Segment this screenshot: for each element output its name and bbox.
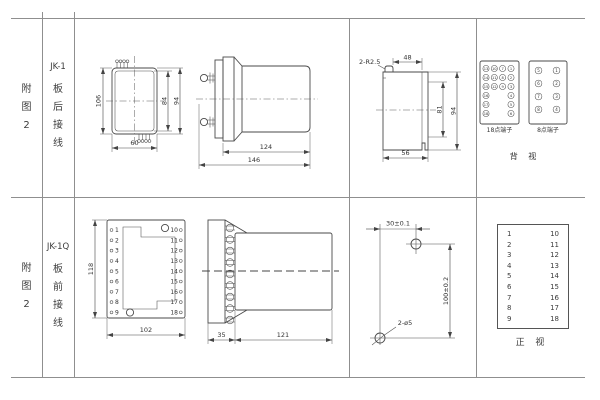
terminal-point (110, 290, 113, 293)
terminal-number: 12 (170, 248, 178, 255)
screw-head (226, 293, 234, 301)
terminal-number: 3 (115, 248, 119, 255)
terminal-table-number: 6 (507, 282, 511, 293)
jk1q-drill-plan: 30±0.1 100±0.2 2-ø5 (358, 212, 470, 364)
terminal-number: 6 (115, 279, 119, 286)
terminal-number: 5 (115, 268, 119, 275)
cutout-outline (383, 72, 428, 150)
terminal-table-number: 2 (507, 240, 511, 251)
terminal-table-number: 11 (550, 240, 559, 251)
terminal-point (110, 249, 113, 252)
table-border-bottom (11, 377, 585, 378)
screw-head (226, 224, 234, 232)
terminal-number: 7 (115, 289, 119, 296)
terminal-table-number: 14 (550, 271, 559, 282)
terminal-point (179, 270, 182, 273)
terminal-comb-top-screws (116, 60, 129, 63)
table-border-top (11, 18, 585, 19)
terminal-table-number: 13 (550, 261, 559, 272)
center-lines (106, 56, 164, 146)
jk1-side-view-drawing: 124 146 (196, 48, 326, 173)
mounting-stud-bottom (200, 117, 215, 128)
dim-48: 48 (403, 54, 411, 62)
terminal-comb-bottom (139, 134, 150, 140)
terminal-point (110, 260, 113, 263)
terminal-point (179, 260, 182, 263)
front-terminals-right: 101112131415161718 (170, 227, 182, 316)
dim-106: 106 (95, 95, 103, 107)
terminal-table-number: 18 (550, 314, 559, 325)
terminal-number: 16 (484, 94, 489, 98)
terminal-number: 2 (115, 237, 119, 244)
terminal-number: 13 (484, 67, 489, 71)
front-plate (208, 220, 225, 323)
holes-note: 2-ø5 (398, 319, 413, 327)
row2-model-cell: JK-1Q 板 前 接 线 (42, 197, 74, 377)
mounting-hole-top (161, 224, 168, 231)
terminal-number: 6 (510, 112, 513, 116)
terminal-number: 17 (484, 103, 489, 107)
terminal-table-number: 4 (507, 261, 511, 272)
terminal-number: 6 (537, 81, 540, 86)
terminal-point (179, 280, 182, 283)
dim-118: 118 (87, 263, 95, 275)
terminal-number: 7 (501, 67, 503, 71)
jk1q-front-view-drawing: 123456789 101112131415161718 118 102 (84, 212, 210, 354)
terminal-point (110, 301, 113, 304)
terminal-table-number: 10 (550, 229, 559, 240)
terminal-point (179, 311, 182, 314)
terminal-number: 2 (555, 81, 558, 86)
table-col-divider-3 (349, 18, 350, 377)
rear-view-label: 背 视 (510, 151, 541, 161)
terminal-table-number: 17 (550, 303, 559, 314)
dim-35: 35 (217, 331, 225, 339)
terminal-18-label: 18点端子 (487, 126, 513, 134)
mounting-hole-bottom (126, 309, 133, 316)
terminal-table-left-column: 123456789 (507, 229, 511, 324)
jk1-rear-view-drawing: 2-R2.5 48 81 94 56 (356, 48, 474, 176)
jk1-front-view-drawing: 106 84 94 60 (88, 42, 198, 164)
terminal-number: 9 (501, 85, 504, 89)
table-row-divider (11, 197, 585, 198)
terminal-block-18-points: 131071141182151293164175186 (483, 65, 514, 116)
dim-124: 124 (260, 143, 272, 151)
terminal-number: 10 (170, 227, 178, 234)
row1-model-cell: JK-1 板 后 接 线 (42, 18, 74, 197)
terminal-table-number: 9 (507, 314, 511, 325)
terminal-screw-stack (225, 224, 235, 324)
terminal-number: 4 (115, 258, 119, 265)
terminal-number: 5 (537, 68, 540, 73)
terminal-point (179, 249, 182, 252)
row1-wiring-label: 板 后 接 线 (53, 81, 63, 153)
terminal-number: 13 (170, 258, 178, 265)
dim-94: 94 (173, 97, 181, 105)
dim-81: 81 (436, 105, 444, 113)
terminal-number: 4 (555, 107, 558, 112)
terminal-8-label: 8点端子 (537, 126, 559, 134)
screw-head (226, 247, 234, 255)
terminal-number: 3 (510, 85, 512, 89)
terminal-number: 14 (484, 76, 489, 80)
radius-note: 2-R2.5 (359, 58, 380, 66)
terminal-number: 12 (492, 85, 497, 89)
extension-lines (208, 310, 332, 344)
screw-head (226, 282, 234, 290)
front-terminals-left: 123456789 (110, 227, 119, 316)
terminal-point (179, 290, 182, 293)
terminal-table-right-column: 101112131415161718 (550, 229, 559, 324)
terminal-point (110, 229, 113, 232)
terminal-table-number: 1 (507, 229, 511, 240)
row2-model-label: JK-1Q (47, 242, 69, 252)
jk1q-side-view-drawing: 35 121 (200, 212, 342, 354)
terminal-number: 15 (170, 279, 178, 286)
technical-drawing-page: 附 图 2 JK-1 板 后 接 线 附 图 2 JK-1Q 板 前 接 线 (0, 0, 600, 400)
terminal-number: 4 (510, 94, 513, 98)
terminal-number: 1 (555, 68, 558, 73)
corner-tab (385, 66, 393, 72)
terminal-point (179, 239, 182, 242)
inner-step-outline (123, 227, 175, 309)
terminal-number: 18 (170, 310, 178, 317)
terminal-point (110, 311, 113, 314)
front-view-label: 正 视 (497, 335, 567, 348)
row2-wiring-label: 板 前 接 线 (53, 261, 63, 333)
terminal-number: 10 (492, 67, 497, 71)
terminal-number: 8 (501, 76, 504, 80)
body-chamfer (225, 220, 247, 323)
mounting-stud-top (200, 73, 215, 84)
terminal-table-number: 15 (550, 282, 559, 293)
terminal-number: 15 (484, 85, 489, 89)
terminal-point (179, 301, 182, 304)
terminal-table-number: 16 (550, 293, 559, 304)
row1-fig-cell: 附 图 2 (11, 18, 42, 197)
row2-fig-cell: 附 图 2 (11, 197, 42, 377)
terminal-comb-top (117, 63, 128, 69)
jk1-terminal-layout: 131071141182151293164175186 51627384 18点… (479, 58, 581, 170)
terminal-number: 16 (170, 289, 178, 296)
terminal-comb-bottom-screws (138, 140, 151, 143)
radius-leader (378, 65, 385, 69)
dim-121: 121 (277, 331, 289, 339)
screw-head (226, 305, 234, 313)
terminal-block-8-outline (529, 61, 567, 124)
dim-30: 30±0.1 (386, 220, 410, 228)
table-col-divider-4 (476, 18, 477, 377)
terminal-point (110, 270, 113, 273)
dim-84: 84 (161, 97, 169, 105)
row1-fig-label: 附 图 2 (22, 81, 32, 135)
table-col-divider-2 (74, 12, 75, 377)
terminal-table-number: 5 (507, 271, 511, 282)
hole-top-crosshair (406, 224, 455, 254)
terminal-table-number: 3 (507, 250, 511, 261)
dim-146: 146 (248, 156, 260, 164)
dim-102: 102 (140, 326, 152, 334)
terminal-number: 7 (537, 94, 540, 99)
dim-94: 94 (450, 107, 458, 115)
terminal-number: 8 (115, 299, 119, 306)
terminal-number: 17 (170, 299, 178, 306)
terminal-table-number: 12 (550, 250, 559, 261)
terminal-number: 14 (170, 268, 178, 275)
terminal-point (110, 280, 113, 283)
terminal-number: 8 (537, 107, 540, 112)
terminal-table-number: 8 (507, 303, 511, 314)
screw-head (226, 259, 234, 267)
terminal-number: 2 (510, 76, 512, 80)
terminal-number: 3 (555, 94, 558, 99)
screw-head (226, 236, 234, 244)
terminal-number: 9 (115, 310, 119, 317)
dim-60: 60 (130, 139, 138, 147)
terminal-number: 11 (170, 237, 178, 244)
terminal-number: 5 (510, 103, 512, 107)
row2-fig-label: 附 图 2 (22, 260, 32, 314)
terminal-number: 18 (484, 112, 489, 116)
dim-56: 56 (401, 149, 409, 157)
terminal-block-8-points: 51627384 (535, 67, 560, 113)
relay-body (235, 233, 332, 310)
terminal-point (110, 239, 113, 242)
terminal-number: 11 (492, 76, 497, 80)
terminal-point (179, 229, 182, 232)
terminal-number: 1 (115, 227, 119, 234)
terminal-number: 1 (510, 67, 512, 71)
dim-100: 100±0.2 (442, 277, 450, 305)
row1-model-label: JK-1 (50, 62, 66, 72)
terminal-table-number: 7 (507, 293, 511, 304)
terminal-number-table: 123456789 101112131415161718 (497, 224, 569, 329)
